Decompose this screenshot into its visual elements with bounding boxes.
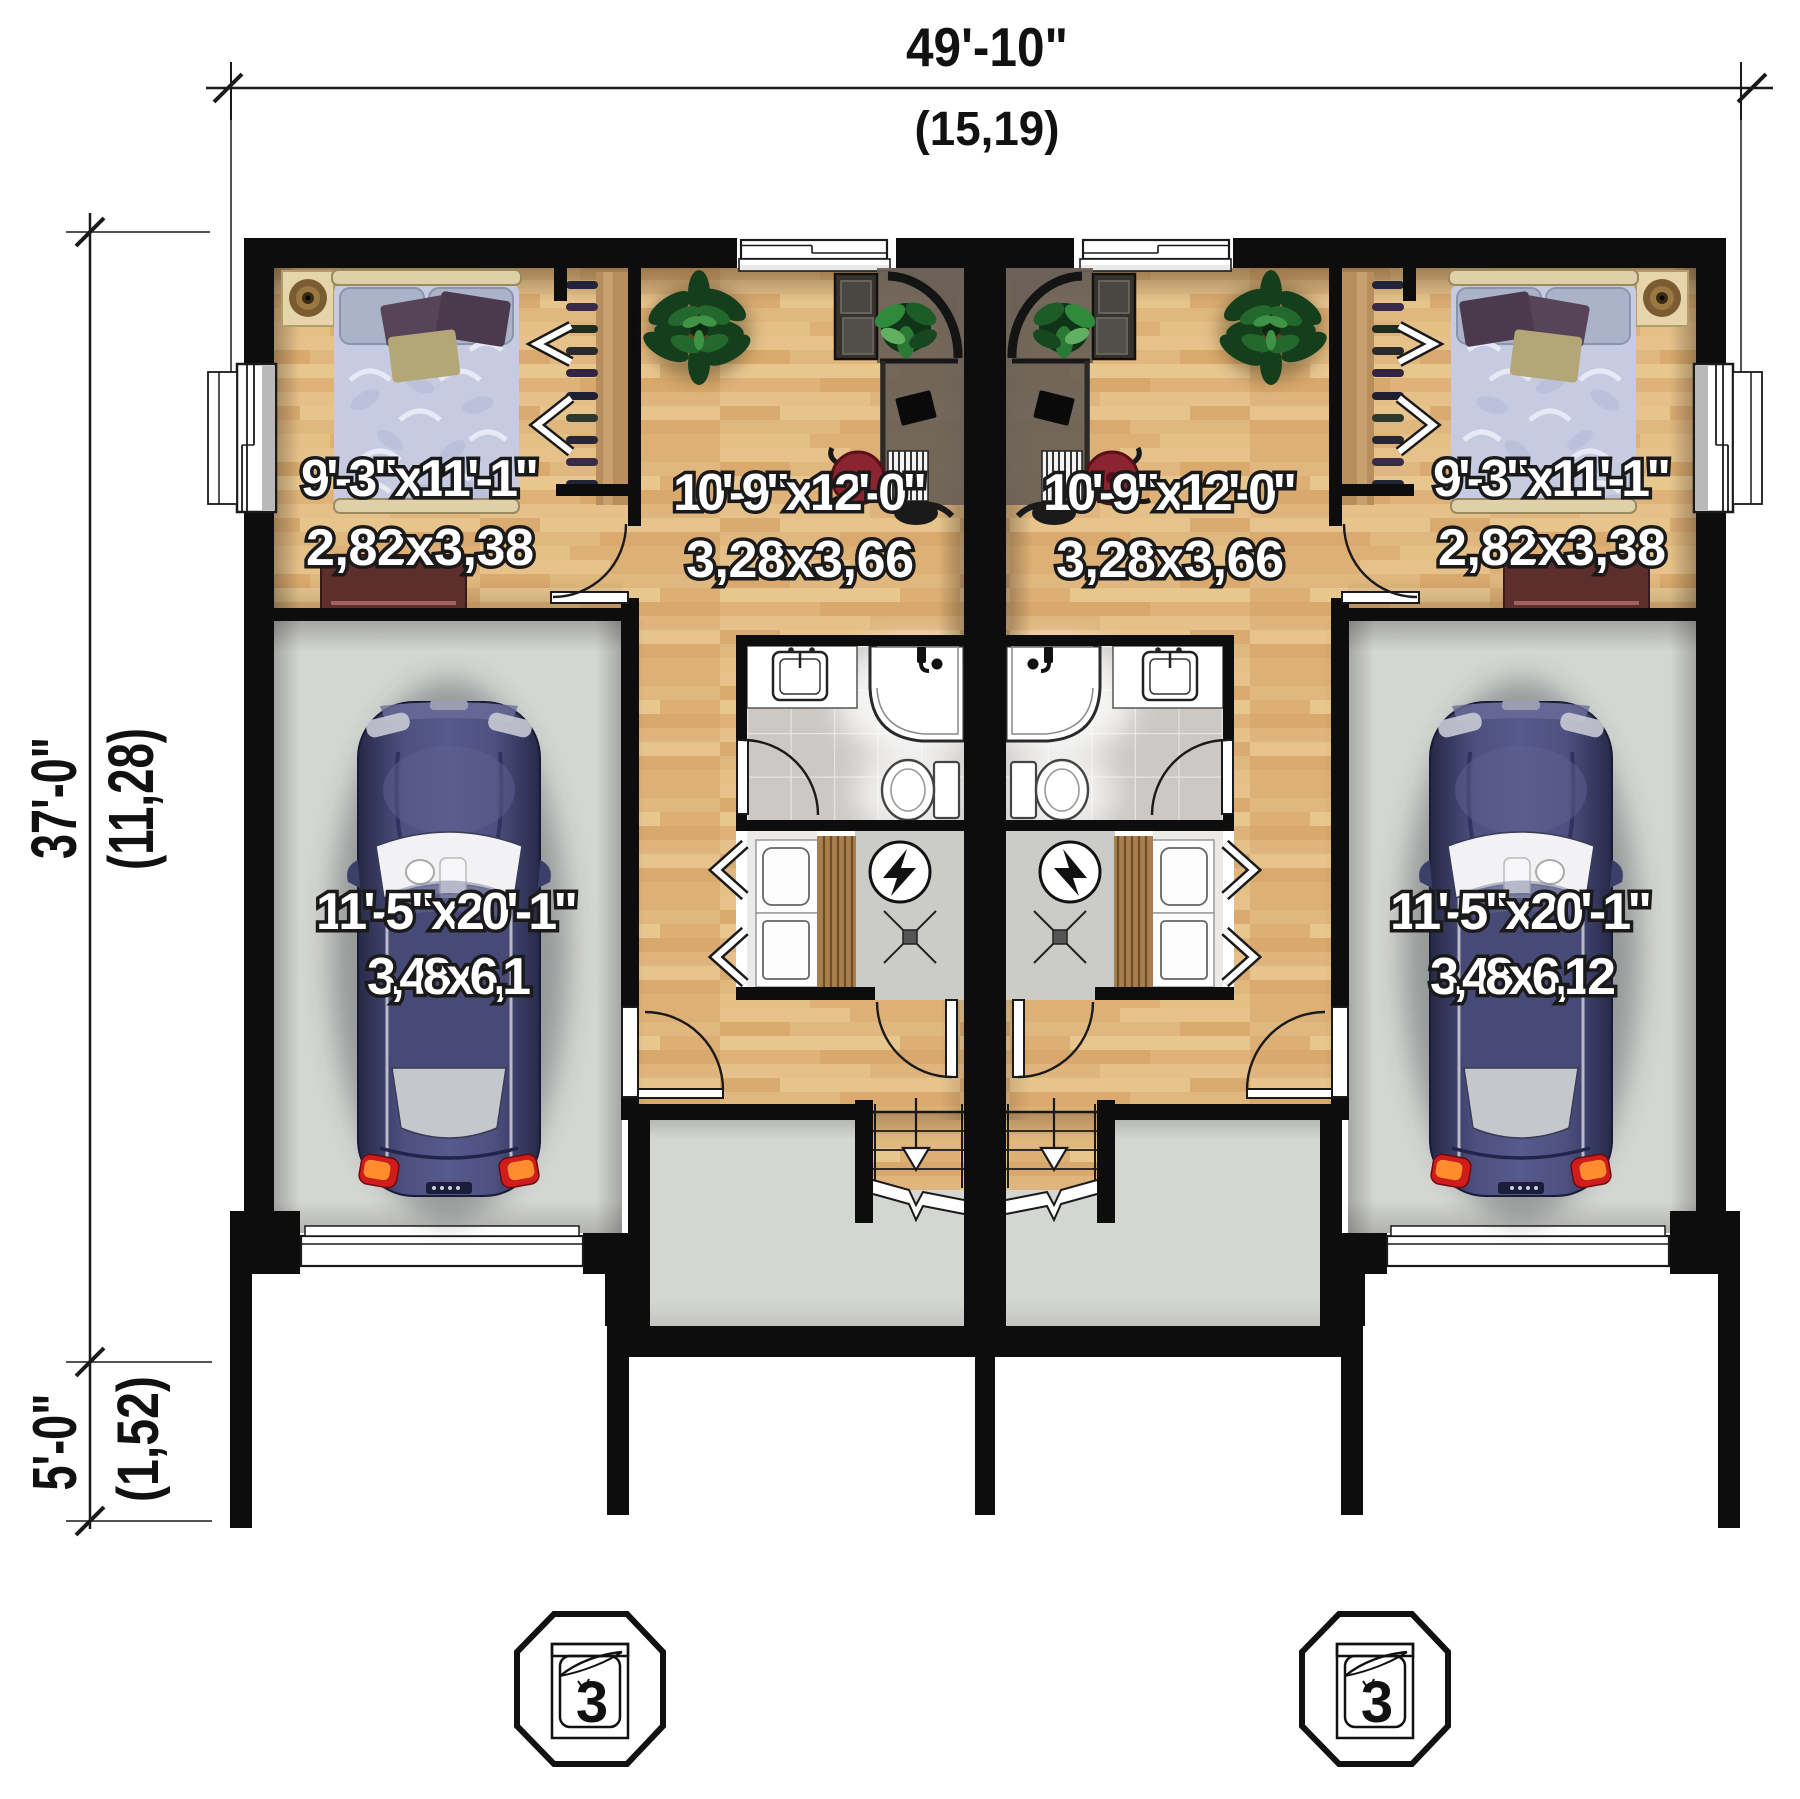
svg-text:9'-3"x11'-1": 9'-3"x11'-1" [1433,450,1671,508]
svg-text:2,82x3,38: 2,82x3,38 [306,519,534,577]
svg-text:3,48x6,12: 3,48x6,12 [1430,948,1616,1006]
svg-text:10'-9"x12'-0": 10'-9"x12'-0" [673,464,927,522]
svg-text:3: 3 [576,1670,608,1735]
svg-text:11'-5"x20'-1": 11'-5"x20'-1" [1390,883,1652,941]
svg-text:9'-3"x11'-1": 9'-3"x11'-1" [301,450,539,508]
svg-text:11'-5"x20'-1": 11'-5"x20'-1" [316,883,578,941]
svg-text:3,28x3,66: 3,28x3,66 [1056,531,1284,589]
svg-text:3,48x6,1: 3,48x6,1 [367,948,531,1006]
svg-text:(11,28): (11,28) [95,728,167,870]
svg-text:(1,52): (1,52) [106,1376,171,1502]
svg-text:49'-10": 49'-10" [906,16,1068,78]
svg-text:(15,19): (15,19) [915,103,1060,156]
svg-text:37'-0": 37'-0" [18,737,90,859]
svg-text:10'-9"x12'-0": 10'-9"x12'-0" [1043,464,1297,522]
svg-text:5'-0": 5'-0" [21,1394,90,1491]
svg-text:2,82x3,38: 2,82x3,38 [1438,519,1666,577]
svg-text:3,28x3,66: 3,28x3,66 [686,531,914,589]
